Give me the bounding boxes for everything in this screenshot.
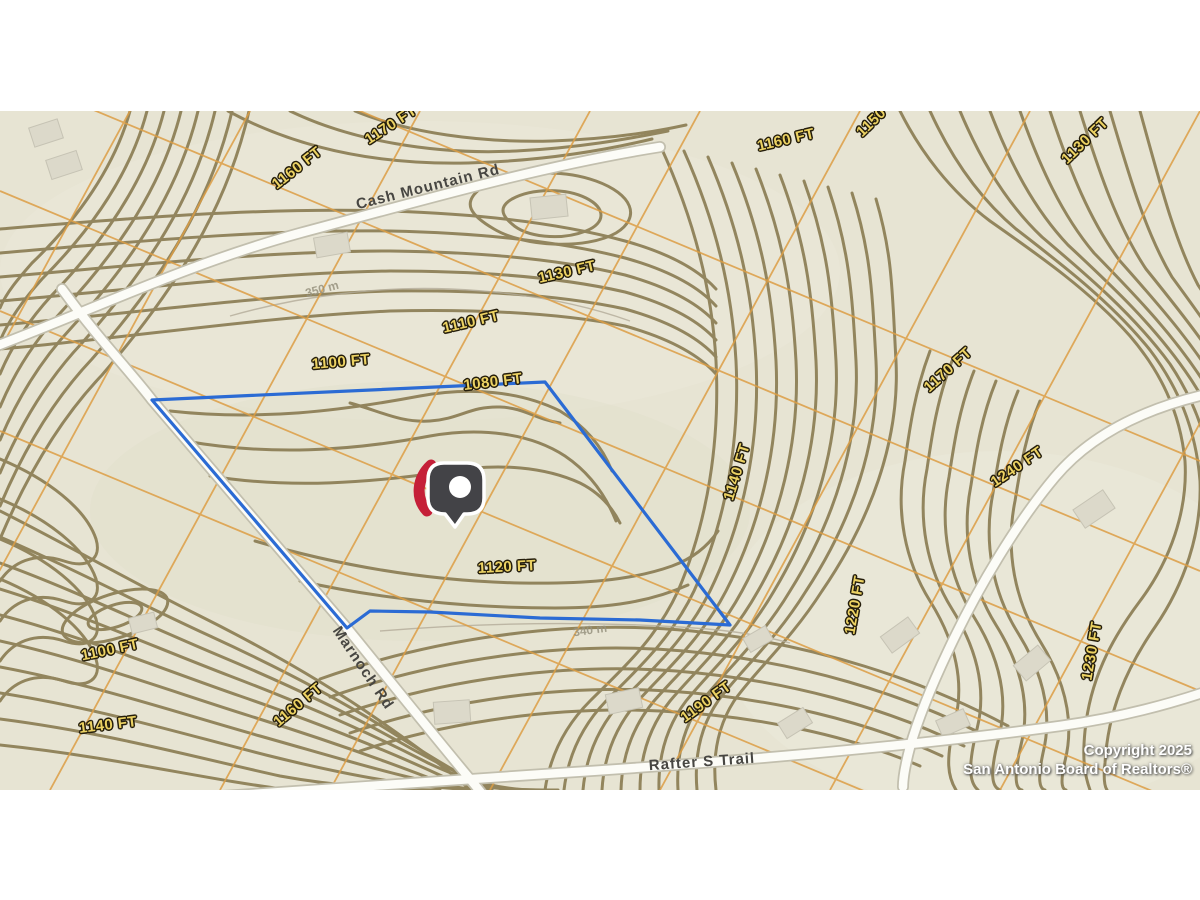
topo-map-canvas[interactable]: 1160 FT1170 FT1150 FT1160 FT1130 FT1130 … [0,111,1200,790]
map-graphics [0,111,1200,790]
pin-hole [449,476,471,498]
screenshot-stage: 1160 FT1170 FT1150 FT1160 FT1130 FT1130 … [0,0,1200,900]
copyright-line2: San Antonio Board of Realtors® [963,760,1192,779]
elevation-label: 1120 FT [477,557,536,577]
copyright-notice: Copyright 2025 San Antonio Board of Real… [963,741,1192,779]
copyright-line1: Copyright 2025 [963,741,1192,760]
